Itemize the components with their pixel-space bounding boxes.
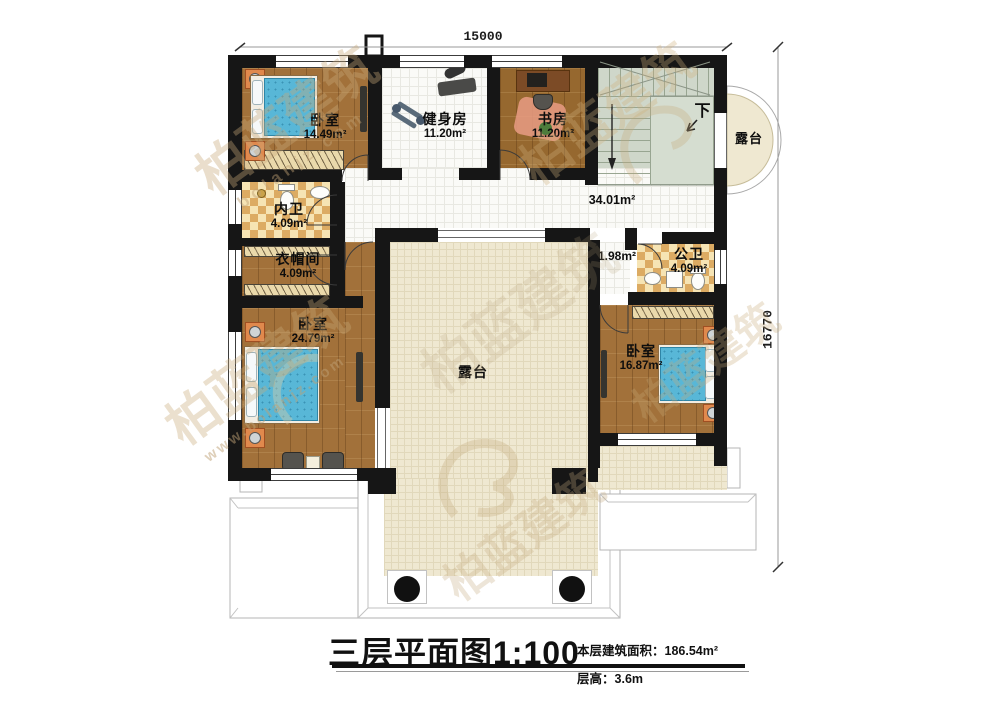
stair-break-lines [598, 62, 714, 185]
dimension-width: 15000 [443, 29, 523, 44]
label-bedroom-top: 卧室14.49m² [275, 113, 375, 142]
info-floor-area: 本层建筑面积：186.54m² [577, 640, 718, 659]
label-hallway-area: 34.01m² [572, 193, 652, 207]
door-arcs [307, 150, 662, 333]
label-terrace-right: 露台 [718, 132, 780, 147]
info-floor-height: 层高：3.6m [577, 668, 643, 687]
label-cloakroom: 衣帽间4.09m² [250, 252, 346, 281]
door-bedroom-top [342, 155, 368, 181]
dimension-height: 16770 [761, 302, 776, 358]
label-public-bath: 公卫4.09m² [644, 247, 734, 276]
title-underline-thin [336, 671, 749, 672]
label-gym: 健身房11.20m² [395, 112, 495, 141]
stair-direction-arrowhead [608, 158, 616, 170]
floor-plan-sheet: 卧室14.49m² 健身房11.20m² 书房11.20m² 内卫4.09m² … [0, 0, 1000, 706]
label-inner-bath: 内卫4.09m² [244, 202, 334, 231]
label-stairs-down: 下 [690, 103, 716, 121]
door-study [500, 150, 530, 180]
watermark-logo [277, 109, 689, 515]
door-bedroom-left [345, 242, 373, 270]
label-bedroom-left: 卧室24.79m² [263, 317, 363, 346]
annotation-layer [0, 0, 1000, 706]
label-passage-area: 1.98m² [585, 250, 649, 263]
door-bedroom-right [600, 305, 628, 333]
label-terrace-center: 露台 [433, 365, 513, 381]
title-underline-thick [332, 664, 745, 668]
label-bedroom-right: 卧室16.87m² [591, 344, 691, 373]
chimney-marker [366, 36, 382, 56]
label-study: 书房11.20m² [503, 112, 603, 141]
